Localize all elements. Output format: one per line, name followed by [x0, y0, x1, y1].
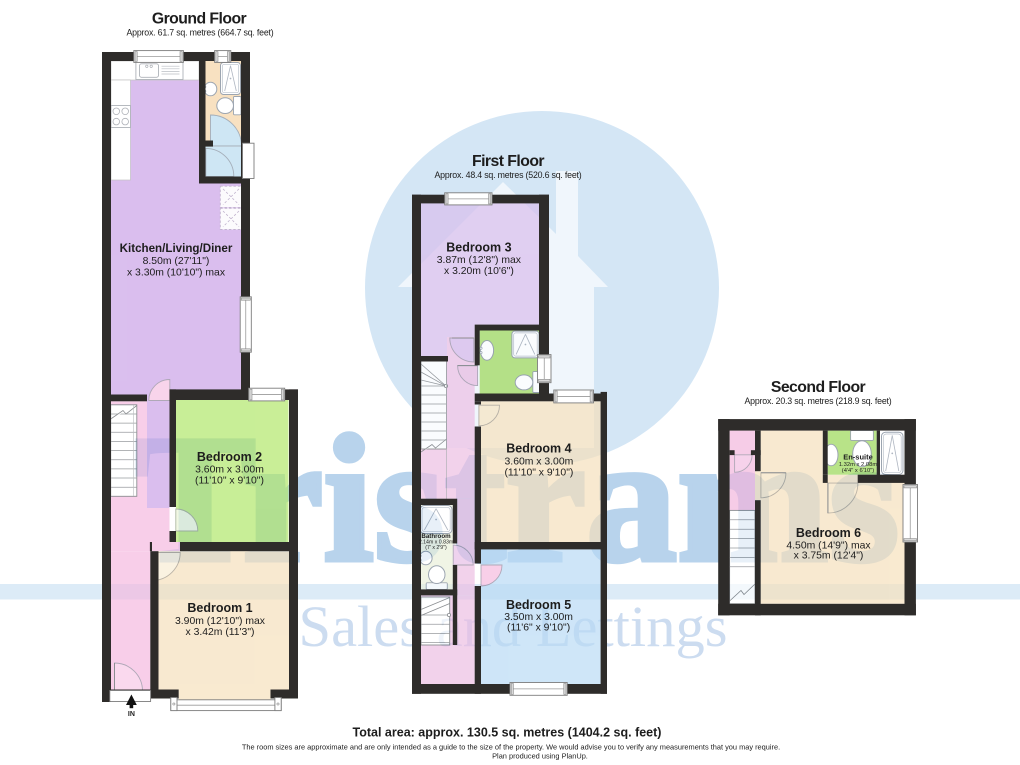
svg-text:Approx. 20.3 sq. metres (218.9: Approx. 20.3 sq. metres (218.9 sq. feet) [744, 396, 891, 406]
svg-text:Approx. 48.4 sq. metres (520.6: Approx. 48.4 sq. metres (520.6 sq. feet) [434, 170, 581, 180]
svg-text:3.50m x 3.00m: 3.50m x 3.00m [504, 612, 573, 623]
svg-text:Bedroom 3: Bedroom 3 [446, 241, 511, 255]
svg-text:3.90m (12'10") max: 3.90m (12'10") max [175, 616, 266, 627]
svg-text:x 3.75m (12'4"): x 3.75m (12'4") [794, 551, 864, 562]
svg-text:x 3.30m (10'10") max: x 3.30m (10'10") max [127, 268, 226, 279]
svg-text:Plan produced using PlanUp.: Plan produced using PlanUp. [492, 752, 588, 761]
svg-text:Ground Floor: Ground Floor [152, 11, 247, 28]
svg-text:The room sizes are approximate: The room sizes are approximate and are o… [242, 743, 780, 752]
svg-text:Total area: approx. 130.5 sq.: Total area: approx. 130.5 sq. metres (14… [353, 725, 662, 739]
svg-text:(4'4" x 6'10"): (4'4" x 6'10") [842, 468, 874, 474]
svg-text:Bedroom 4: Bedroom 4 [506, 442, 571, 456]
svg-text:x 3.42m (11'3"): x 3.42m (11'3") [185, 627, 254, 638]
svg-text:En-suite: En-suite [843, 453, 873, 462]
svg-text:First Floor: First Floor [472, 153, 544, 170]
svg-text:Second Floor: Second Floor [771, 379, 866, 396]
svg-text:Kitchen/Living/Diner: Kitchen/Living/Diner [120, 242, 233, 255]
svg-text:Bedroom 5: Bedroom 5 [506, 598, 571, 612]
svg-text:3.60m x 3.00m: 3.60m x 3.00m [505, 457, 574, 468]
svg-text:(11'10" x 9'10"): (11'10" x 9'10") [195, 476, 264, 487]
svg-text:Approx. 61.7 sq. metres (664.7: Approx. 61.7 sq. metres (664.7 sq. feet) [126, 28, 273, 38]
svg-text:8.50m (27'11"): 8.50m (27'11") [143, 256, 210, 267]
svg-text:Bedroom 6: Bedroom 6 [796, 526, 861, 540]
svg-text:(11'6" x 9'10"): (11'6" x 9'10") [507, 623, 570, 634]
svg-text:(7' x 2'9"): (7' x 2'9") [425, 545, 447, 551]
svg-text:Bedroom 1: Bedroom 1 [187, 601, 252, 615]
svg-text:x 3.20m (10'6"): x 3.20m (10'6") [444, 266, 514, 277]
svg-text:(11'10" x 9'10"): (11'10" x 9'10") [504, 468, 573, 479]
svg-text:Bedroom 2: Bedroom 2 [197, 450, 262, 464]
svg-text:3.60m x 3.00m: 3.60m x 3.00m [195, 465, 264, 476]
svg-text:3.87m (12'8") max: 3.87m (12'8") max [437, 255, 522, 266]
svg-text:IN: IN [128, 711, 135, 718]
